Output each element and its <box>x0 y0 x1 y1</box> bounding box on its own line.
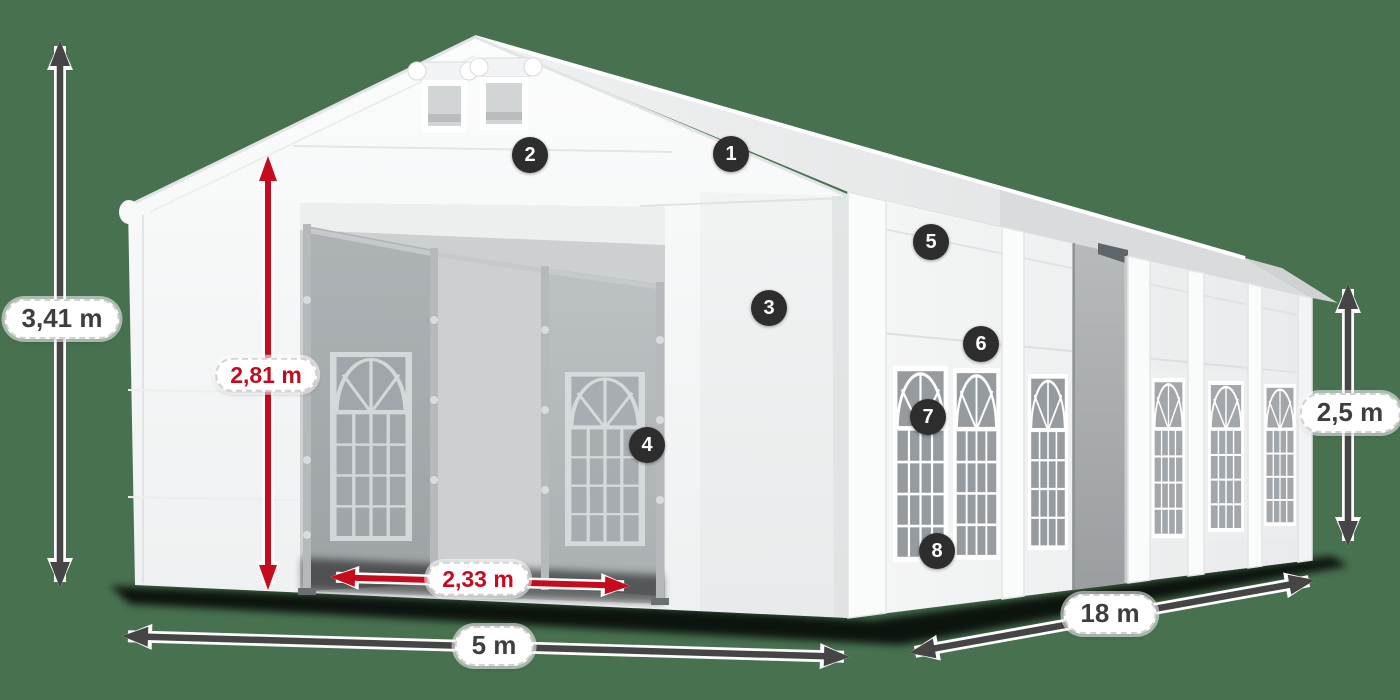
feature-marker-4[interactable]: 4 <box>629 427 665 463</box>
tent-illustration <box>0 0 1400 700</box>
feature-marker-6[interactable]: 6 <box>963 326 999 362</box>
dimension-label-total-height: 3,41 m <box>5 299 120 339</box>
tent-dimension-diagram: 3,41 m 2,81 m 2,33 m 5 m 18 m 2,5 m 1 2 … <box>0 0 1400 700</box>
dimension-label-door-height: 2,81 m <box>215 358 317 392</box>
dimension-label-side-length: 18 m <box>1063 594 1156 634</box>
feature-marker-5[interactable]: 5 <box>913 224 949 260</box>
front-opening-interior <box>298 203 669 605</box>
dimension-label-door-width: 2,33 m <box>427 562 529 596</box>
feature-marker-1[interactable]: 1 <box>713 136 749 172</box>
feature-marker-3[interactable]: 3 <box>751 290 787 326</box>
feature-marker-2[interactable]: 2 <box>512 137 548 173</box>
feature-marker-7[interactable]: 7 <box>910 399 946 435</box>
side-door-opening <box>1072 243 1128 590</box>
dimension-label-side-height: 2,5 m <box>1300 393 1400 433</box>
dimension-label-front-width: 5 m <box>455 626 534 666</box>
feature-marker-8[interactable]: 8 <box>919 533 955 569</box>
